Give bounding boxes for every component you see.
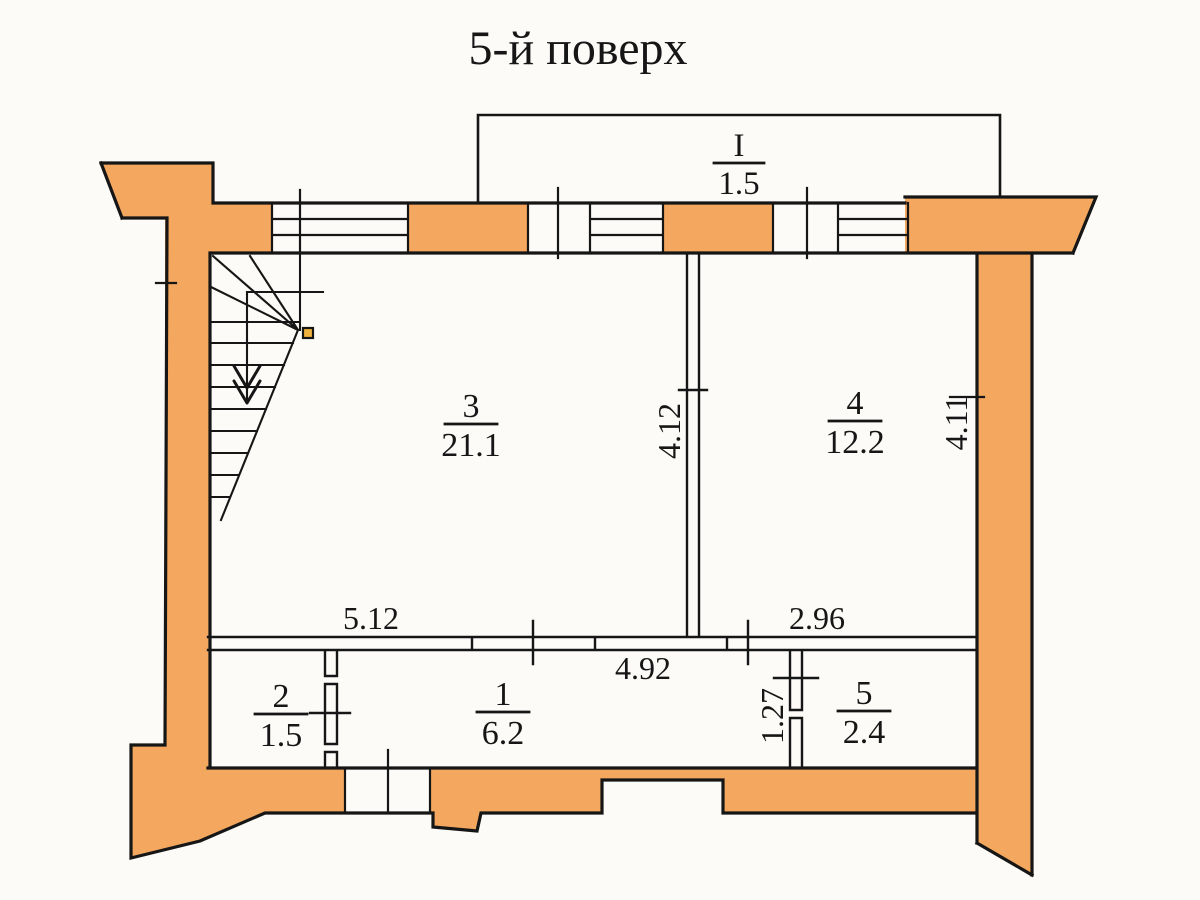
room-1-area: 6.2 <box>482 715 525 752</box>
dim-5-12: 5.12 <box>343 600 399 636</box>
dim-4-92: 4.92 <box>615 650 671 686</box>
dim-4-11: 4.11 <box>938 396 974 451</box>
room-3-area: 21.1 <box>441 427 501 464</box>
room-4-number: 4 <box>847 385 864 422</box>
dim-2-96: 2.96 <box>789 600 845 636</box>
room-5-area: 2.4 <box>843 714 886 751</box>
balcony-area: 1.5 <box>718 166 759 202</box>
room-3-number: 3 <box>463 388 480 425</box>
wall-top-right-block <box>905 197 1096 253</box>
room-4-area: 12.2 <box>825 424 885 461</box>
floor-plan-drawing: 5-й поверх I 1.5 3 21.1 4 12.2 2 1.5 1 6… <box>0 0 1200 900</box>
room-2-number: 2 <box>273 678 290 715</box>
room-2-area: 1.5 <box>260 717 303 754</box>
dim-1-27: 1.27 <box>754 688 790 744</box>
wall-top-segment-a <box>408 203 528 253</box>
dim-4-12: 4.12 <box>651 403 687 459</box>
wall-top-segment-b <box>663 203 773 253</box>
floor-plan-page: 5-й поверх I 1.5 3 21.1 4 12.2 2 1.5 1 6… <box>0 0 1200 900</box>
stair-marker-square <box>303 328 313 338</box>
page-title: 5-й поверх <box>468 22 687 75</box>
wall-right <box>977 253 1032 875</box>
room-5-number: 5 <box>856 675 873 712</box>
balcony-number: I <box>734 128 745 164</box>
room-1-number: 1 <box>495 676 512 713</box>
